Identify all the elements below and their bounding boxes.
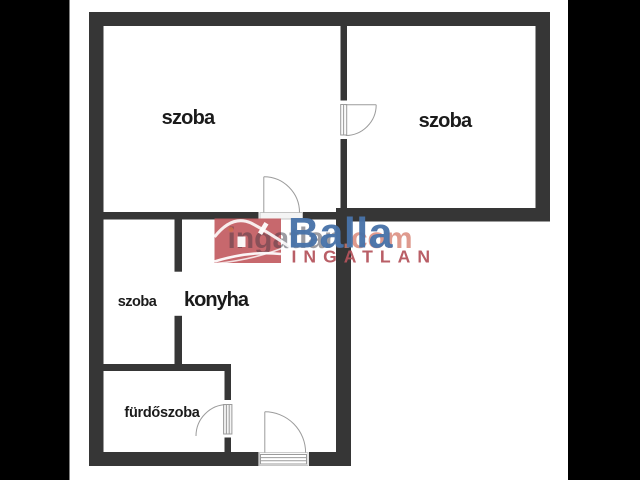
svg-text:szoba: szoba bbox=[118, 294, 158, 310]
svg-text:fürdőszoba: fürdőszoba bbox=[124, 405, 200, 421]
svg-text:szoba: szoba bbox=[419, 110, 473, 132]
svg-text:INGATLAN: INGATLAN bbox=[292, 247, 438, 267]
svg-text:szoba: szoba bbox=[162, 107, 216, 129]
svg-text:konyha: konyha bbox=[184, 289, 250, 311]
